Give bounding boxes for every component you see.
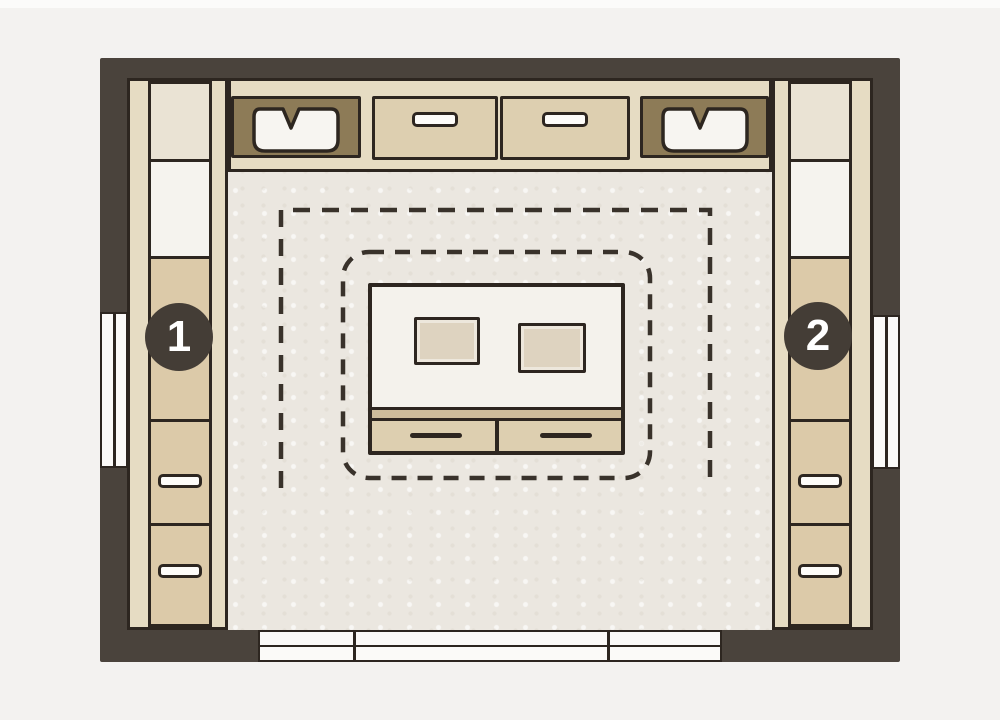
door-track-line — [260, 645, 720, 648]
cabinet-section — [791, 84, 849, 159]
drawer-handle — [412, 112, 458, 127]
pull-out-bin-icon — [250, 105, 342, 155]
drawer-handle — [158, 474, 202, 488]
marker-badge-2: 2 — [784, 302, 852, 370]
drawer-handle — [798, 564, 842, 578]
island-counter-edge — [372, 407, 621, 421]
island-tray-right — [518, 323, 586, 373]
marker-badge-1: 1 — [145, 303, 213, 371]
marker-label: 1 — [167, 315, 191, 359]
drawer-divider — [495, 421, 499, 451]
cabinet-section — [791, 159, 849, 256]
drawer-section — [791, 523, 849, 624]
marker-label: 2 — [806, 314, 830, 358]
door-leaf-divider — [353, 632, 356, 660]
drawer-section — [791, 419, 849, 523]
bin-cabinet-left — [231, 96, 361, 158]
page-top-strip — [0, 0, 1000, 8]
bin-cabinet-right — [640, 96, 769, 158]
cabinet-section — [151, 84, 209, 159]
window-pane-line — [113, 314, 116, 466]
sliding-door — [258, 630, 722, 662]
island-drawer-row — [372, 421, 621, 451]
drawer-section — [151, 523, 209, 624]
window-left — [100, 312, 128, 468]
drawer-handle — [158, 564, 202, 578]
drawer-handle — [542, 112, 588, 127]
drawer-handle — [410, 433, 462, 438]
center-island — [368, 283, 625, 455]
window-pane-line — [885, 317, 888, 467]
drawer-section — [151, 419, 209, 523]
door-leaf-divider — [607, 632, 610, 660]
drawer-handle — [540, 433, 592, 438]
island-tray-left — [414, 317, 480, 365]
top-cabinet-run — [228, 78, 772, 172]
window-right — [872, 315, 900, 469]
pull-out-bin-icon — [659, 105, 751, 155]
top-drawer-cabinet-1 — [372, 96, 498, 160]
drawer-handle — [798, 474, 842, 488]
cabinet-section — [151, 159, 209, 256]
top-drawer-cabinet-2 — [500, 96, 630, 160]
